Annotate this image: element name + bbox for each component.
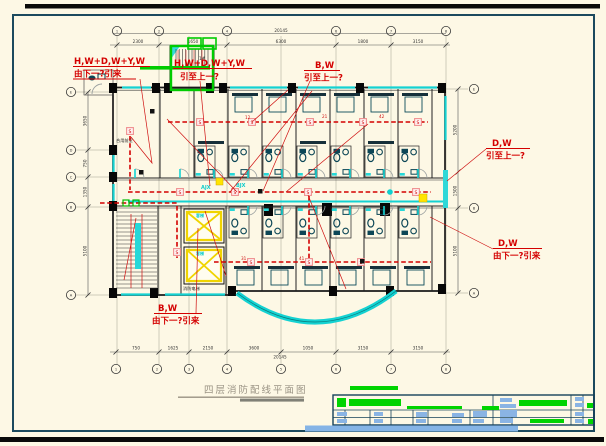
dim-bot-3: 2150 (203, 346, 214, 351)
plan-title-text: 四层消防配线平面图 (204, 384, 308, 396)
dim-bot-6: 3150 (358, 346, 369, 351)
company-name-bar (349, 399, 401, 406)
dim-right-1: 5200 (453, 124, 458, 135)
annotation-text: H,W+D,W+Y,W (174, 59, 246, 69)
circuit-no-21: 21 (322, 114, 328, 119)
dim-bot-1: 750 (132, 346, 140, 351)
dim-top-total: 20145 (274, 28, 288, 33)
axis-bot-7: 7 (390, 367, 392, 371)
yellow-device-2 (419, 194, 427, 202)
riser-duct (443, 170, 448, 208)
circuit-no-31: 31 (241, 256, 247, 261)
elevator-label-1: 客梯 (195, 212, 204, 218)
dim-left-4: 5100 (83, 245, 88, 256)
annotation-text: 引至上一? (180, 72, 219, 83)
dim-right-2: 1500 (453, 185, 458, 196)
dim-top-2: 1650 (188, 39, 199, 44)
cad-canvas: S (0, 0, 606, 446)
dim-bot-2: 1625 (168, 346, 179, 351)
dim-left-1: 3650 (83, 115, 88, 126)
dim-bot-4: 3600 (249, 346, 260, 351)
annotation-text: D,W (498, 239, 518, 249)
annotation-text: B,W (315, 61, 335, 71)
corridor-label-ajx: AJX (201, 185, 211, 191)
axis-bot-3: 3 (188, 367, 190, 371)
circuit-no-42: 42 (379, 114, 385, 119)
dim-bot-5: 1050 (303, 346, 314, 351)
junction-dot (387, 189, 393, 195)
circuit-no-12: 12 (245, 115, 251, 120)
dim-top-5: 3150 (413, 39, 424, 44)
dim-top-3: 6300 (276, 39, 287, 44)
annotation-text: B,W (158, 304, 178, 314)
circuit-no-41: 41 (299, 256, 305, 261)
axis-top-2: 2 (158, 29, 160, 33)
titleblock-blue-bar (305, 426, 518, 432)
dim-top-1: 2300 (133, 39, 144, 44)
annotation-text: H,W+D,W+Y,W (74, 57, 146, 67)
axis-left-2: D (70, 148, 73, 152)
annotation-text: D,W (492, 139, 512, 149)
elevator-label-2: 客梯 (195, 250, 204, 256)
top-black-bar (25, 4, 600, 9)
fire-elevator-label: 消防电梯 (183, 285, 200, 292)
dim-bot-7: 3150 (413, 346, 424, 351)
dim-left-2: 750 (83, 159, 88, 167)
axis-bot-5: 5 (280, 367, 282, 371)
annotation-text: 由下一?引来 (493, 251, 541, 262)
axis-bot-1: 1 (115, 367, 117, 371)
dim-bot-total: 20145 (273, 355, 287, 360)
axis-top-5: 7 (390, 29, 392, 33)
company-logo (337, 398, 346, 407)
annotation-text: 由下一?引来 (74, 69, 122, 80)
axis-bot-2: 2 (156, 367, 158, 371)
axis-top-1: 1 (116, 29, 118, 33)
dim-top-4: 1800 (358, 39, 369, 44)
dim-left-3: 1350 (83, 186, 88, 197)
bottom-black-bar (0, 437, 604, 442)
annotation-text: 由下一?引来 (152, 316, 200, 327)
annotation-text: 引至上一? (486, 151, 525, 162)
yellow-device-1 (216, 178, 223, 185)
cad-screenshot: S (0, 0, 606, 446)
dim-right-3: 5100 (453, 245, 458, 256)
